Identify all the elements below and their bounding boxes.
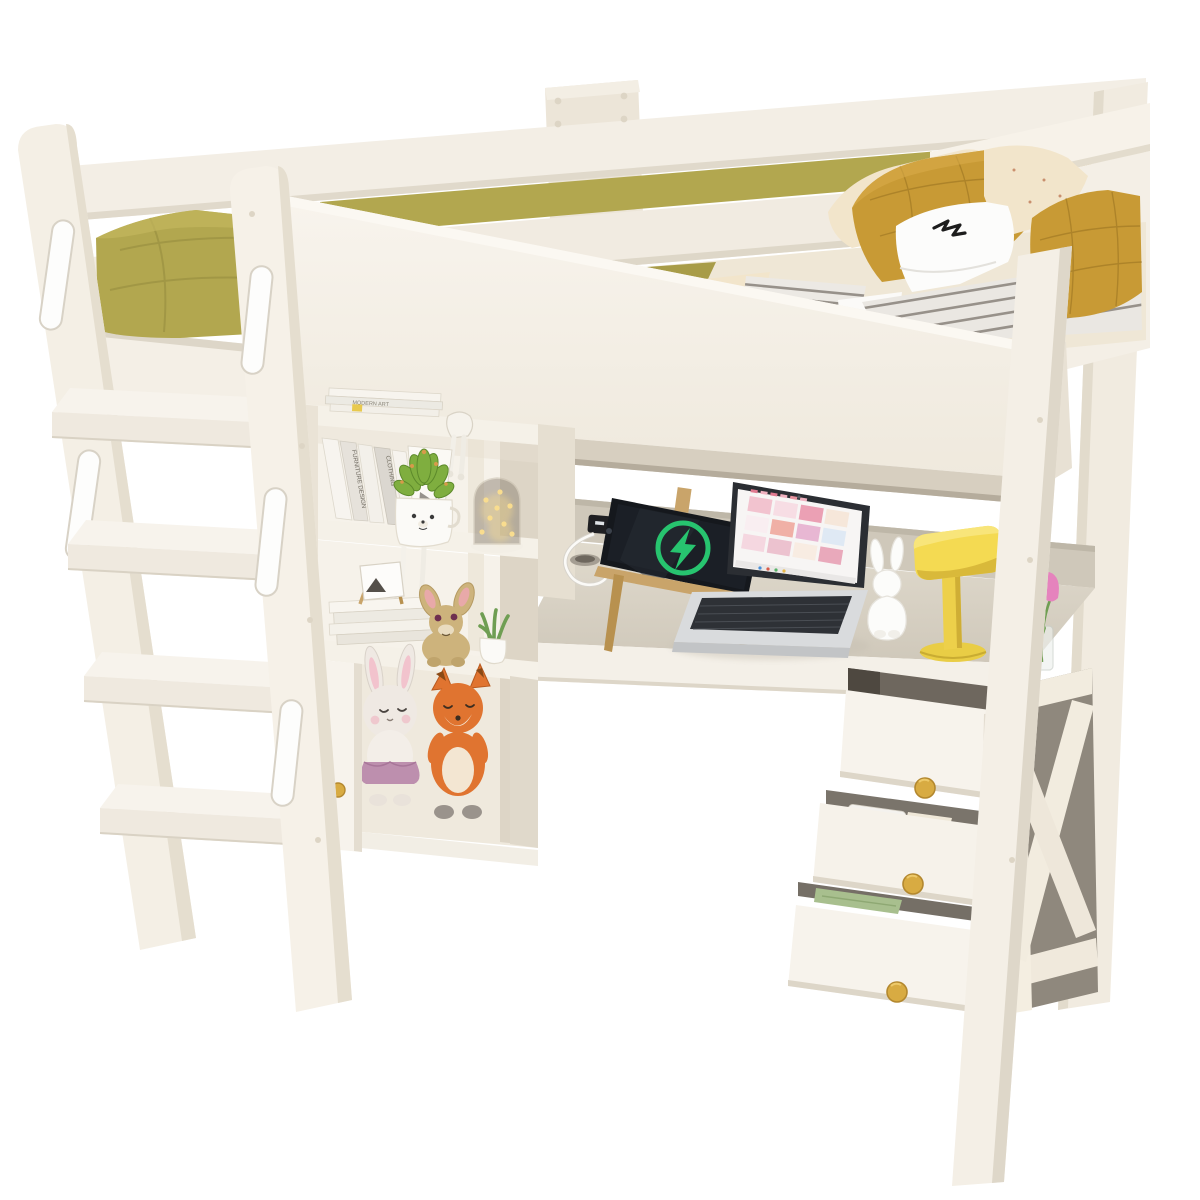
book-stack	[328, 597, 437, 646]
yellow-page-tab	[352, 404, 362, 412]
fox-belly	[442, 747, 474, 793]
fairy-light-jar	[471, 478, 523, 553]
ladder-step	[52, 388, 270, 448]
webcam-dot	[797, 495, 800, 498]
product-photo-stage: MODERN ART FURNITURE DESIGN CLOTHING MOD…	[0, 0, 1200, 1200]
cable-grommet	[570, 554, 600, 566]
cabinet-right-side	[510, 676, 538, 848]
loft-bed-render: MODERN ART FURNITURE DESIGN CLOTHING MOD…	[0, 0, 1200, 1200]
